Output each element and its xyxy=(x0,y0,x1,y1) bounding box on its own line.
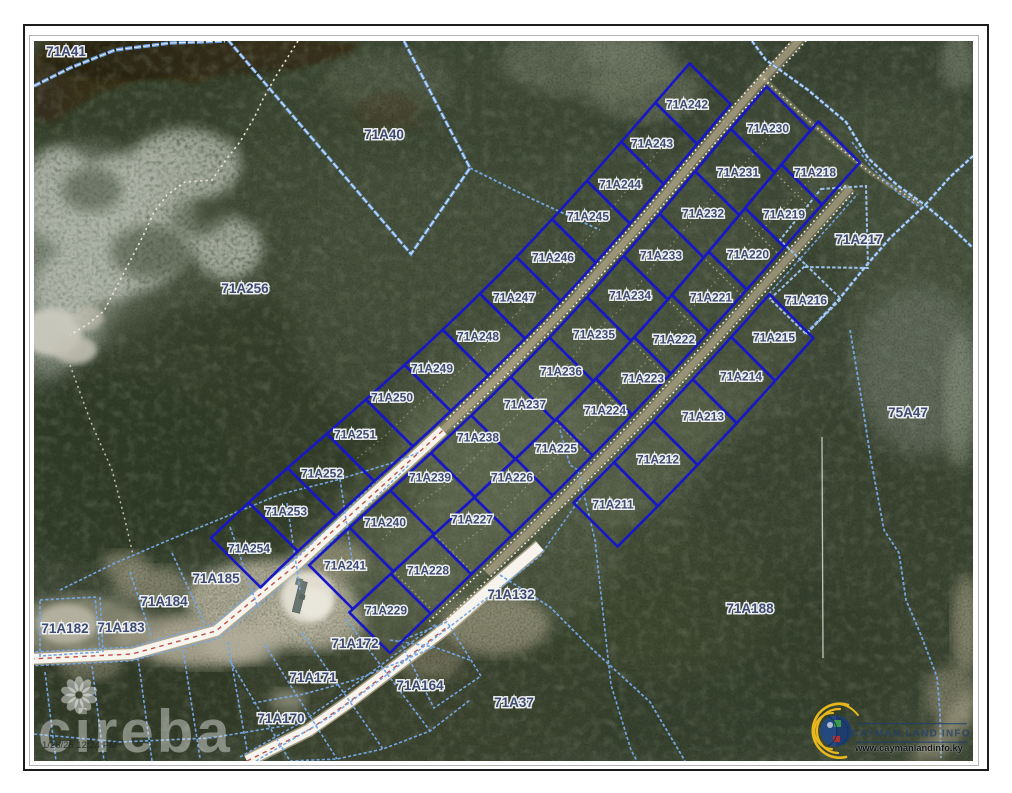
svg-text:71A229: 71A229 xyxy=(365,603,407,617)
svg-text:71A228: 71A228 xyxy=(407,563,449,577)
svg-text:71A249: 71A249 xyxy=(411,361,453,375)
svg-text:71A188: 71A188 xyxy=(726,601,774,616)
svg-text:71A41: 71A41 xyxy=(46,44,86,59)
svg-text:71A241: 71A241 xyxy=(324,558,366,572)
svg-text:71A222: 71A222 xyxy=(653,332,695,346)
svg-text:71A240: 71A240 xyxy=(364,515,406,529)
svg-text:71A246: 71A246 xyxy=(532,250,574,264)
svg-text:71A164: 71A164 xyxy=(396,678,444,693)
svg-text:71A238: 71A238 xyxy=(457,430,499,444)
svg-text:71A219: 71A219 xyxy=(763,207,805,221)
svg-text:71A37: 71A37 xyxy=(494,695,534,710)
svg-text:71A236: 71A236 xyxy=(540,364,582,378)
svg-text:71A211: 71A211 xyxy=(592,497,634,511)
svg-text:71A183: 71A183 xyxy=(97,620,145,635)
svg-text:71A251: 71A251 xyxy=(334,427,376,441)
svg-text:71A182: 71A182 xyxy=(41,621,88,636)
svg-text:71A212: 71A212 xyxy=(637,452,679,466)
svg-text:71A243: 71A243 xyxy=(631,136,673,150)
svg-text:71A235: 71A235 xyxy=(573,327,615,341)
svg-text:71A213: 71A213 xyxy=(682,409,724,423)
svg-text:71A232: 71A232 xyxy=(682,206,724,220)
svg-text:71A40: 71A40 xyxy=(364,127,404,142)
svg-text:71A233: 71A233 xyxy=(640,248,682,262)
svg-text:71A247: 71A247 xyxy=(493,290,535,304)
svg-text:71A170: 71A170 xyxy=(257,711,304,726)
svg-text:71A214: 71A214 xyxy=(720,369,762,383)
svg-text:cireba: cireba xyxy=(38,698,233,761)
svg-text:71A242: 71A242 xyxy=(666,97,708,111)
svg-text:71A244: 71A244 xyxy=(599,177,641,191)
svg-text:71A184: 71A184 xyxy=(140,594,188,609)
svg-text:71A215: 71A215 xyxy=(753,330,795,344)
svg-text:CAYMAN LAND INFO: CAYMAN LAND INFO xyxy=(851,729,970,740)
svg-text:71A239: 71A239 xyxy=(409,470,451,484)
svg-text:71A225: 71A225 xyxy=(535,441,577,455)
svg-text:71A230: 71A230 xyxy=(747,121,789,135)
svg-text:71A216: 71A216 xyxy=(785,293,827,307)
svg-text:71A248: 71A248 xyxy=(457,329,499,343)
svg-text:71A227: 71A227 xyxy=(451,512,493,526)
svg-text:71A218: 71A218 xyxy=(794,165,836,179)
svg-text:71A231: 71A231 xyxy=(717,165,759,179)
svg-text:71A253: 71A253 xyxy=(265,504,307,518)
svg-text:71A217: 71A217 xyxy=(835,232,882,247)
svg-text:71A254: 71A254 xyxy=(228,541,270,555)
svg-text:71A221: 71A221 xyxy=(690,290,732,304)
svg-text:75A47: 75A47 xyxy=(888,405,928,420)
svg-text:71A171: 71A171 xyxy=(289,670,337,685)
svg-text:71A132: 71A132 xyxy=(487,587,534,602)
svg-text:www.caymanlandinfo.ky: www.caymanlandinfo.ky xyxy=(854,743,963,753)
svg-text:71A226: 71A226 xyxy=(491,470,533,484)
svg-text:71A172: 71A172 xyxy=(331,636,378,651)
svg-text:1/26/25 12:24 PM: 1/26/25 12:24 PM xyxy=(42,740,117,751)
svg-text:71A252: 71A252 xyxy=(301,466,343,480)
svg-text:71A237: 71A237 xyxy=(504,397,546,411)
svg-text:71A185: 71A185 xyxy=(192,571,240,586)
svg-text:71A234: 71A234 xyxy=(609,288,651,302)
svg-text:71A224: 71A224 xyxy=(584,403,626,417)
svg-text:71A250: 71A250 xyxy=(371,390,413,404)
svg-text:71A256: 71A256 xyxy=(221,281,269,296)
svg-text:71A223: 71A223 xyxy=(622,371,664,385)
svg-text:71A220: 71A220 xyxy=(727,247,769,261)
svg-text:71A245: 71A245 xyxy=(567,209,609,223)
